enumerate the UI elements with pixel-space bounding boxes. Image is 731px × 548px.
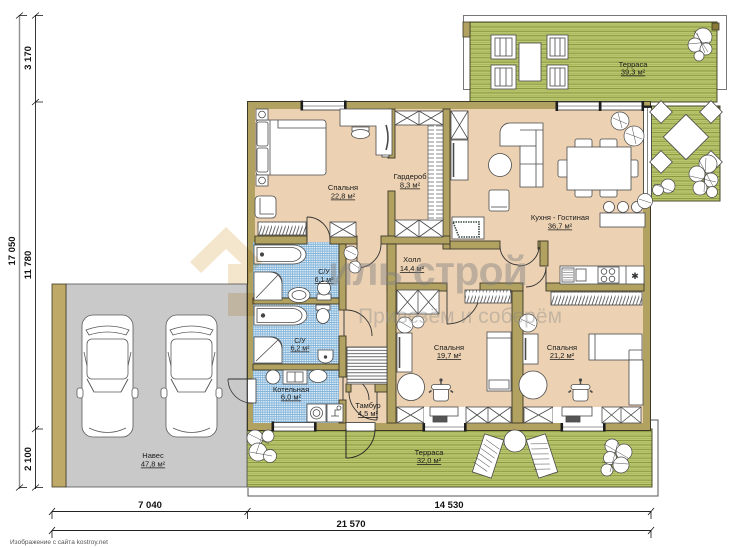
svg-text:32,0 м²: 32,0 м² bbox=[417, 456, 442, 465]
svg-text:11 780: 11 780 bbox=[23, 251, 34, 280]
svg-text:14 530: 14 530 bbox=[434, 500, 463, 511]
svg-text:22,8 м²: 22,8 м² bbox=[331, 192, 356, 201]
svg-text:✱: ✱ bbox=[631, 271, 639, 281]
svg-text:39,3 м²: 39,3 м² bbox=[621, 68, 646, 77]
svg-text:3 170: 3 170 bbox=[23, 46, 34, 70]
svg-text:С/У: С/У bbox=[294, 338, 306, 345]
svg-text:17 050: 17 050 bbox=[7, 236, 18, 265]
svg-text:47,8 м²: 47,8 м² bbox=[141, 460, 166, 469]
svg-text:2 100: 2 100 bbox=[23, 447, 34, 471]
svg-text:19,7 м²: 19,7 м² bbox=[437, 351, 462, 360]
svg-text:иль строй: иль строй bbox=[328, 248, 528, 294]
svg-text:6,0 м²: 6,0 м² bbox=[281, 393, 302, 402]
svg-text:21 570: 21 570 bbox=[336, 519, 365, 530]
svg-text:21,2 м²: 21,2 м² bbox=[550, 351, 575, 360]
svg-text:36,7 м²: 36,7 м² bbox=[548, 222, 573, 231]
svg-text:6,2 м²: 6,2 м² bbox=[291, 346, 310, 353]
svg-text:7 040: 7 040 bbox=[138, 500, 162, 511]
svg-text:8,3 м²: 8,3 м² bbox=[400, 181, 421, 190]
svg-text:4,5 м²: 4,5 м² bbox=[358, 409, 379, 418]
svg-text:Привезём и соберём: Привезём и соберём bbox=[358, 305, 562, 328]
svg-text:Изображение с сайта kostroy.ne: Изображение с сайта kostroy.net bbox=[10, 538, 108, 546]
